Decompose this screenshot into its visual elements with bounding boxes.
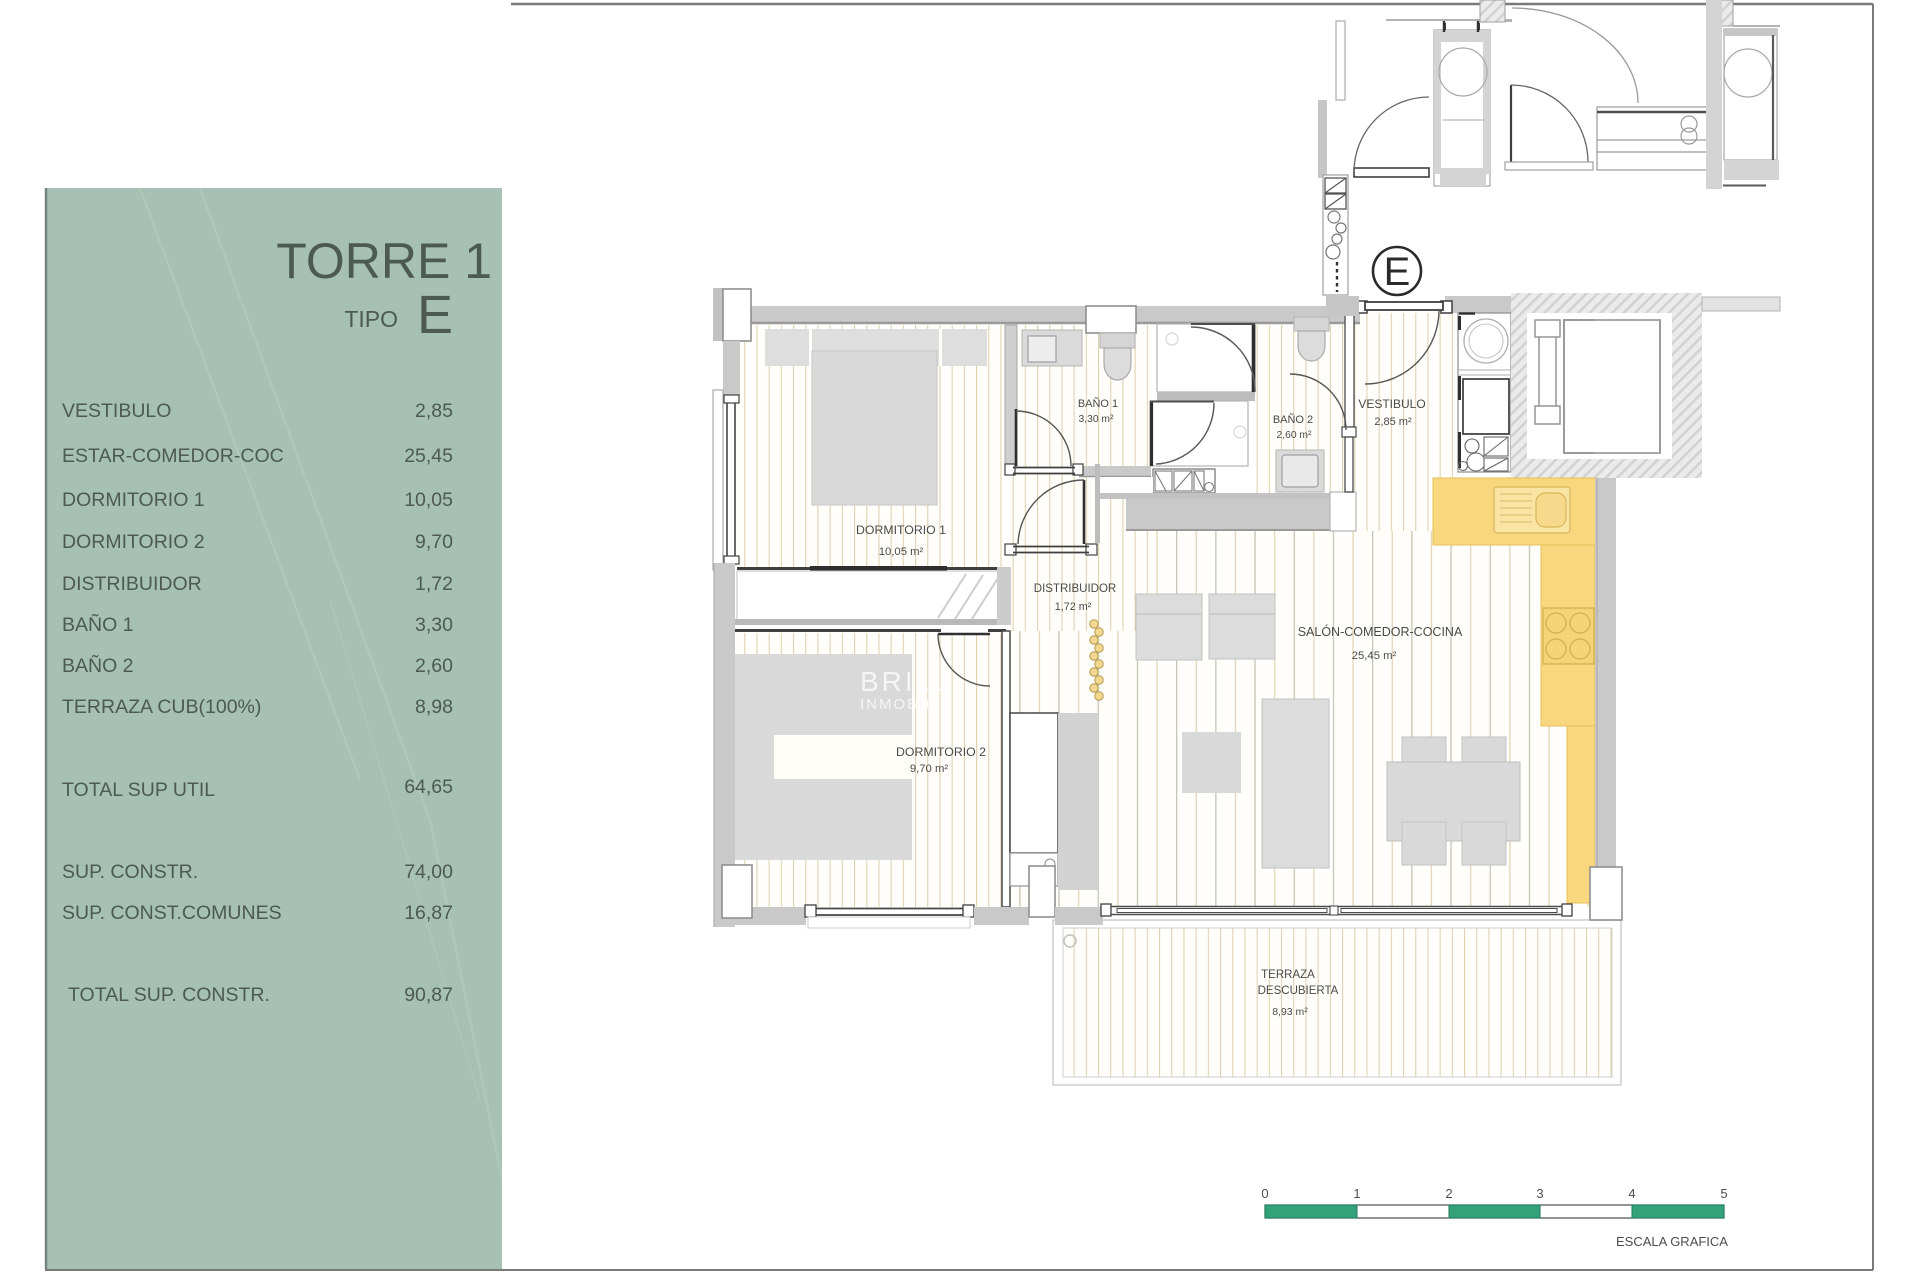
svg-text:VESTIBULO: VESTIBULO	[62, 400, 171, 422]
svg-text:ESTAR-COMEDOR-COC: ESTAR-COMEDOR-COC	[62, 445, 284, 467]
svg-text:INMOBILI: INMOBILI	[860, 696, 942, 713]
svg-text:5: 5	[1720, 1186, 1727, 1201]
svg-text:DORMITORIO 1: DORMITORIO 1	[856, 523, 946, 537]
svg-text:74,00: 74,00	[404, 861, 453, 883]
svg-text:1,72 m²: 1,72 m²	[1055, 601, 1092, 613]
svg-text:2,60 m²: 2,60 m²	[1277, 430, 1312, 441]
svg-text:TORRE 1: TORRE 1	[276, 233, 492, 289]
svg-text:0: 0	[1261, 1186, 1268, 1201]
svg-text:TERRAZA CUB(100%): TERRAZA CUB(100%)	[62, 696, 261, 718]
svg-text:8,93 m²: 8,93 m²	[1272, 1006, 1308, 1018]
svg-text:2: 2	[1445, 1186, 1452, 1201]
svg-text:E: E	[1384, 250, 1411, 294]
svg-text:10,05: 10,05	[404, 489, 453, 511]
svg-text:2,85 m²: 2,85 m²	[1374, 416, 1412, 428]
svg-text:DISTRIBUIDOR: DISTRIBUIDOR	[1034, 583, 1116, 595]
svg-text:9,70 m²: 9,70 m²	[910, 763, 949, 775]
svg-text:E: E	[417, 285, 453, 345]
svg-text:DORMITORIO 2: DORMITORIO 2	[896, 745, 986, 759]
svg-text:2,85: 2,85	[415, 400, 453, 422]
svg-text:TIPO: TIPO	[344, 306, 398, 332]
svg-text:VESTIBULO: VESTIBULO	[1358, 397, 1425, 411]
svg-text:BAÑO 2: BAÑO 2	[1273, 413, 1313, 426]
svg-text:TOTAL SUP. CONSTR.: TOTAL SUP. CONSTR.	[68, 984, 270, 1006]
svg-text:1,72: 1,72	[415, 573, 453, 595]
svg-text:4: 4	[1628, 1186, 1635, 1201]
svg-text:DESCUBIERTA: DESCUBIERTA	[1258, 985, 1339, 997]
svg-text:BAÑO 1: BAÑO 1	[1078, 397, 1118, 410]
svg-text:90,87: 90,87	[404, 984, 453, 1006]
svg-text:DORMITORIO 2: DORMITORIO 2	[62, 531, 205, 553]
svg-text:3,30 m²: 3,30 m²	[1079, 414, 1114, 425]
svg-text:DISTRIBUIDOR: DISTRIBUIDOR	[62, 573, 202, 595]
svg-text:2,60: 2,60	[415, 655, 453, 677]
svg-text:10,05 m²: 10,05 m²	[879, 546, 924, 558]
svg-text:3: 3	[1536, 1186, 1543, 1201]
svg-text:SALÓN-COMEDOR-COCINA: SALÓN-COMEDOR-COCINA	[1298, 624, 1463, 639]
svg-text:25,45 m²: 25,45 m²	[1352, 650, 1397, 662]
svg-text:16,87: 16,87	[404, 902, 453, 924]
svg-text:SUP. CONSTR.: SUP. CONSTR.	[62, 861, 198, 883]
svg-text:ESCALA GRAFICA: ESCALA GRAFICA	[1616, 1234, 1728, 1249]
svg-text:SUP. CONST.COMUNES: SUP. CONST.COMUNES	[62, 902, 282, 924]
svg-text:1: 1	[1353, 1186, 1360, 1201]
svg-text:3,30: 3,30	[415, 614, 453, 636]
svg-text:9,70: 9,70	[415, 531, 453, 553]
svg-text:BAÑO 1: BAÑO 1	[62, 612, 134, 636]
svg-text:DORMITORIO 1: DORMITORIO 1	[62, 489, 205, 511]
svg-text:BRILL: BRILL	[860, 666, 953, 697]
svg-text:BAÑO 2: BAÑO 2	[62, 653, 134, 677]
svg-text:TERRAZA: TERRAZA	[1261, 969, 1315, 981]
svg-text:64,65: 64,65	[404, 776, 453, 798]
svg-text:TOTAL SUP UTIL: TOTAL SUP UTIL	[62, 779, 215, 801]
svg-text:25,45: 25,45	[404, 445, 453, 467]
svg-text:8,98: 8,98	[415, 696, 453, 718]
